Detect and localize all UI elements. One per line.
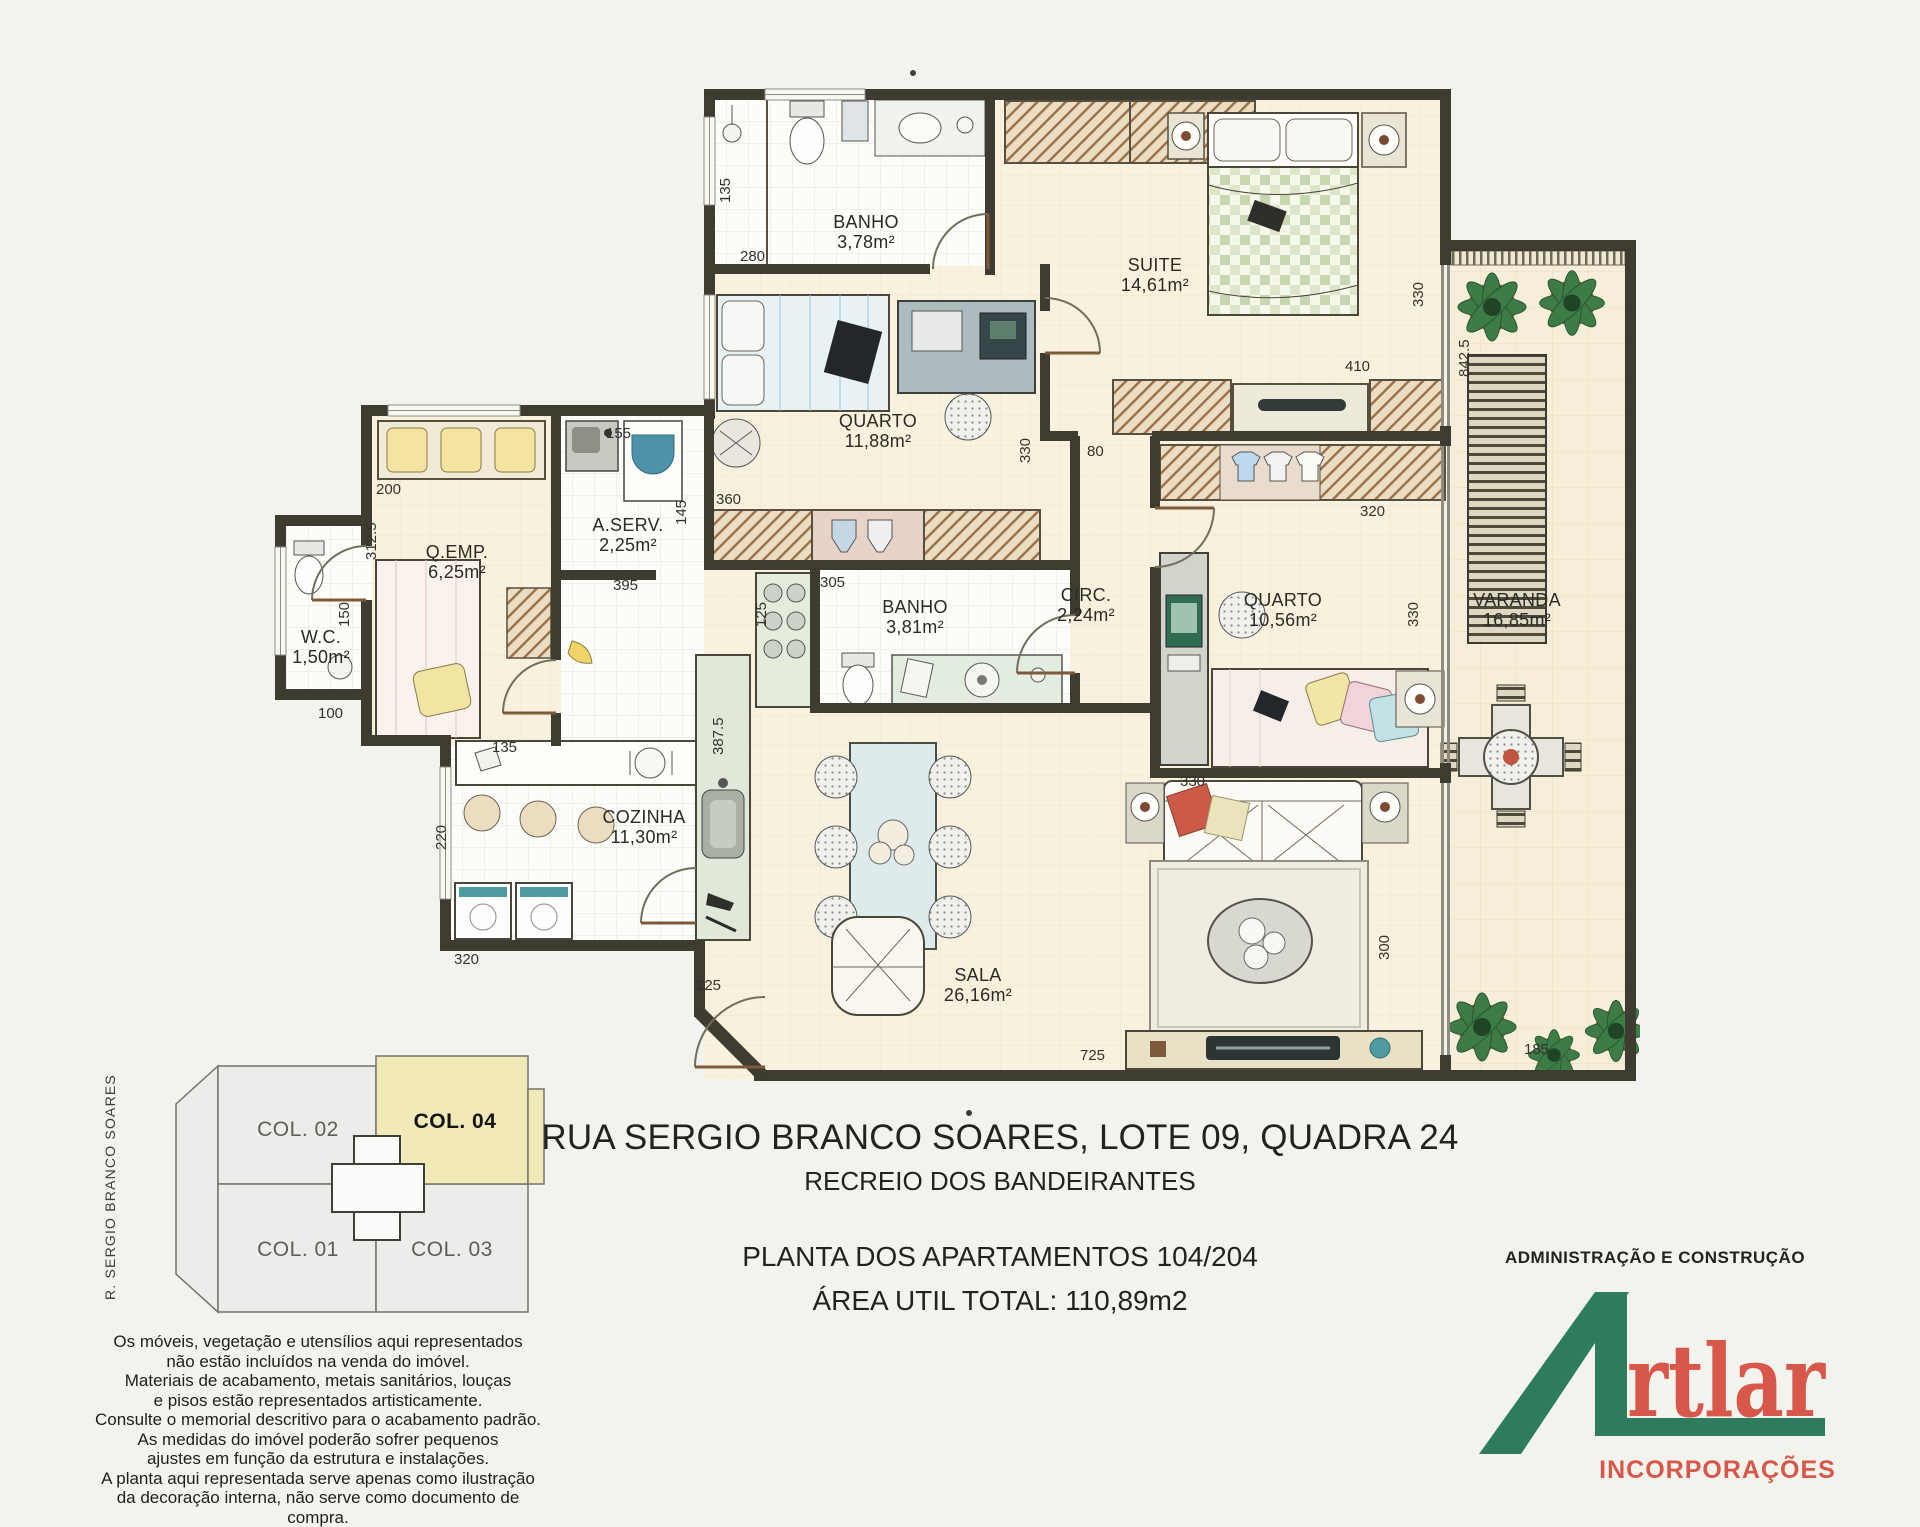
- stool: [464, 795, 500, 831]
- dim-label: 330: [1405, 602, 1422, 627]
- plant-icon: [1458, 273, 1526, 341]
- dim-label: 135: [717, 178, 734, 203]
- shower-icon: [723, 124, 741, 142]
- key-plan-drawing: [128, 1044, 548, 1334]
- address-line: RUA SERGIO BRANCO SOARES, LOTE 09, QUADR…: [540, 1118, 1460, 1158]
- dim-label: 100: [318, 705, 343, 722]
- sink-icon: [899, 113, 941, 143]
- toilet-icon: [790, 118, 824, 164]
- dim-label: 842.5: [1456, 339, 1473, 377]
- room-area: 26,16m²: [944, 985, 1012, 1005]
- key-plan-street-label: R. SERGIO BRANCO SOARES: [102, 1074, 118, 1300]
- dim-label: 135: [492, 739, 517, 756]
- dim-label: 330: [1410, 282, 1427, 307]
- bench: [1565, 743, 1581, 771]
- dim-label: 300: [1376, 935, 1393, 960]
- dim-label: 280: [740, 248, 765, 265]
- dim-label: 155: [606, 425, 631, 442]
- varanda-pergola-strip: [1451, 251, 1625, 265]
- dining-chair: [815, 826, 857, 868]
- dim-label: 200: [376, 481, 401, 498]
- disclaimer-line: Consulte o memorial descritivo para o ac…: [88, 1410, 548, 1430]
- disclaimer-line: ajustes em função da estrutura e instala…: [88, 1449, 548, 1469]
- dim-label: 410: [1345, 358, 1370, 375]
- scanned-floor-plan-page: { "title_block": { "address": "RUA SERGI…: [0, 0, 1920, 1500]
- room-label-wc: W.C.1,50m²: [246, 627, 396, 667]
- room-area: 11,30m²: [611, 827, 678, 847]
- disclaimer-line: da decoração interna, não serve como doc…: [88, 1488, 548, 1527]
- key-plan-unit-col04: COL. 04: [395, 1110, 515, 1134]
- admin-construction-line: ADMINISTRAÇÃO E CONSTRUÇÃO: [1450, 1248, 1860, 1268]
- dim-label: 145: [673, 500, 690, 525]
- district-line: RECREIO DOS BANDEIRANTES: [540, 1166, 1460, 1197]
- scan-speck: [910, 70, 916, 76]
- room-area: 16,85m²: [1483, 610, 1551, 630]
- branding-block: ADMINISTRAÇÃO E CONSTRUÇÃO rtlar INCORPO…: [1440, 1240, 1870, 1500]
- room-name: QUARTO: [1244, 590, 1322, 610]
- room-label-cozinha: COZINHA11,30m²: [569, 807, 719, 847]
- dim-label: 125: [753, 602, 770, 627]
- artlar-logo: rtlar: [1475, 1286, 1835, 1454]
- disclaimer-line: Materiais de acabamento, metais sanitári…: [88, 1371, 548, 1391]
- dim-label: 150: [336, 602, 353, 627]
- room-name: SALA: [954, 965, 1001, 985]
- room-name: QUARTO: [839, 411, 917, 431]
- dining-chair: [929, 826, 971, 868]
- qemp-shelf: [507, 588, 551, 658]
- dim-label: 360: [716, 491, 741, 508]
- plant-icon: [1448, 993, 1516, 1061]
- dim-label: 395: [613, 577, 638, 594]
- dim-label: 312.5: [363, 522, 380, 560]
- room-name: BANHO: [833, 212, 899, 232]
- room-area: 6,25m²: [428, 562, 486, 582]
- dim-label: 330: [1017, 438, 1034, 463]
- room-label-banho-1: BANHO3,78m²: [791, 212, 941, 252]
- room-name: VARANDA: [1473, 590, 1561, 610]
- bench: [1497, 685, 1525, 701]
- dim-label: 725: [1080, 1047, 1105, 1064]
- dim-label: 387.5: [710, 717, 727, 755]
- disclaimer-line: e pisos estão representados artisticamen…: [88, 1391, 548, 1411]
- logo-wordmark: rtlar: [1627, 1322, 1826, 1440]
- room-area: 10,56m²: [1249, 610, 1317, 630]
- room-area: 11,88m²: [845, 431, 912, 451]
- dim-label: 320: [454, 951, 479, 968]
- plan-number-line: PLANTA DOS APARTAMENTOS 104/204: [540, 1241, 1460, 1273]
- plant-icon: [1540, 271, 1605, 336]
- disclaimer-line: A planta aqui representada serve apenas …: [88, 1469, 548, 1489]
- key-plan-unit-col01: COL. 01: [238, 1238, 358, 1262]
- dining-chair: [929, 756, 971, 798]
- key-plan-unit-col02: COL. 02: [238, 1118, 358, 1142]
- disclaimer-line: Os móveis, vegetação e utensílios aqui r…: [88, 1332, 548, 1352]
- room-name: BANHO: [882, 597, 948, 617]
- room-label-quarto-1: QUARTO11,88m²: [803, 411, 953, 451]
- room-label-circ: CIRC.2,24m²: [1011, 585, 1161, 625]
- floor-plan: BANHO3,78m² SUITE14,61m² QUARTO11,88m² A…: [220, 55, 1640, 1095]
- room-name: SUITE: [1128, 255, 1183, 275]
- cushion: [1204, 795, 1249, 840]
- room-area: 1,50m²: [292, 647, 350, 667]
- room-area: 3,81m²: [886, 617, 944, 637]
- scan-speck: [966, 1110, 972, 1116]
- title-block: RUA SERGIO BRANCO SOARES, LOTE 09, QUADR…: [540, 1118, 1460, 1317]
- dim-label: 320: [1360, 503, 1385, 520]
- dim-label: 185: [1524, 1041, 1549, 1058]
- dining-chair: [815, 756, 857, 798]
- room-label-sala: SALA26,16m²: [903, 965, 1053, 1005]
- dim-label: 330: [1180, 773, 1205, 790]
- room-area: 2,24m²: [1057, 605, 1115, 625]
- dim-label: 80: [1087, 443, 1104, 460]
- disclaimer-line: não estão incluídos na venda do imóvel.: [88, 1352, 548, 1372]
- room-label-quarto-2: QUARTO10,56m²: [1208, 590, 1358, 630]
- room-area: 2,25m²: [599, 535, 657, 555]
- logo-subtitle: INCORPORAÇÕES: [1595, 1456, 1840, 1485]
- room-label-varanda: VARANDA16,85m²: [1442, 590, 1592, 630]
- room-name: CIRC.: [1061, 585, 1112, 605]
- key-plan-unit-col03: COL. 03: [392, 1238, 512, 1262]
- room-name: COZINHA: [602, 807, 685, 827]
- room-area: 14,61m²: [1121, 275, 1189, 295]
- dining-chair: [929, 896, 971, 938]
- key-plan: R. SERGIO BRANCO SOARES COL. 02 COL. 04 …: [88, 1038, 558, 1338]
- disclaimer-line: As medidas do imóvel poderão sofrer pequ…: [88, 1430, 548, 1450]
- dim-label: 220: [433, 825, 450, 850]
- total-area-line: ÁREA UTIL TOTAL: 110,89m2: [540, 1285, 1460, 1317]
- room-name: W.C.: [301, 627, 341, 647]
- room-label-banho-2: BANHO3,81m²: [840, 597, 990, 637]
- disclaimer-text: Os móveis, vegetação e utensílios aqui r…: [88, 1332, 548, 1527]
- room-label-suite: SUITE14,61m²: [1080, 255, 1230, 295]
- dim-label: 225: [696, 977, 721, 994]
- room-area: 3,78m²: [837, 232, 895, 252]
- plate-icon: [635, 748, 665, 778]
- varanda-glass-wall: [1441, 265, 1450, 1055]
- toilet-icon: [843, 665, 873, 705]
- dim-label: 305: [820, 574, 845, 591]
- stool: [520, 801, 556, 837]
- room-label-qemp: Q.EMP.6,25m²: [382, 542, 532, 582]
- bench: [1497, 811, 1525, 827]
- room-name: Q.EMP.: [426, 542, 489, 562]
- room-name: A.SERV.: [592, 515, 663, 535]
